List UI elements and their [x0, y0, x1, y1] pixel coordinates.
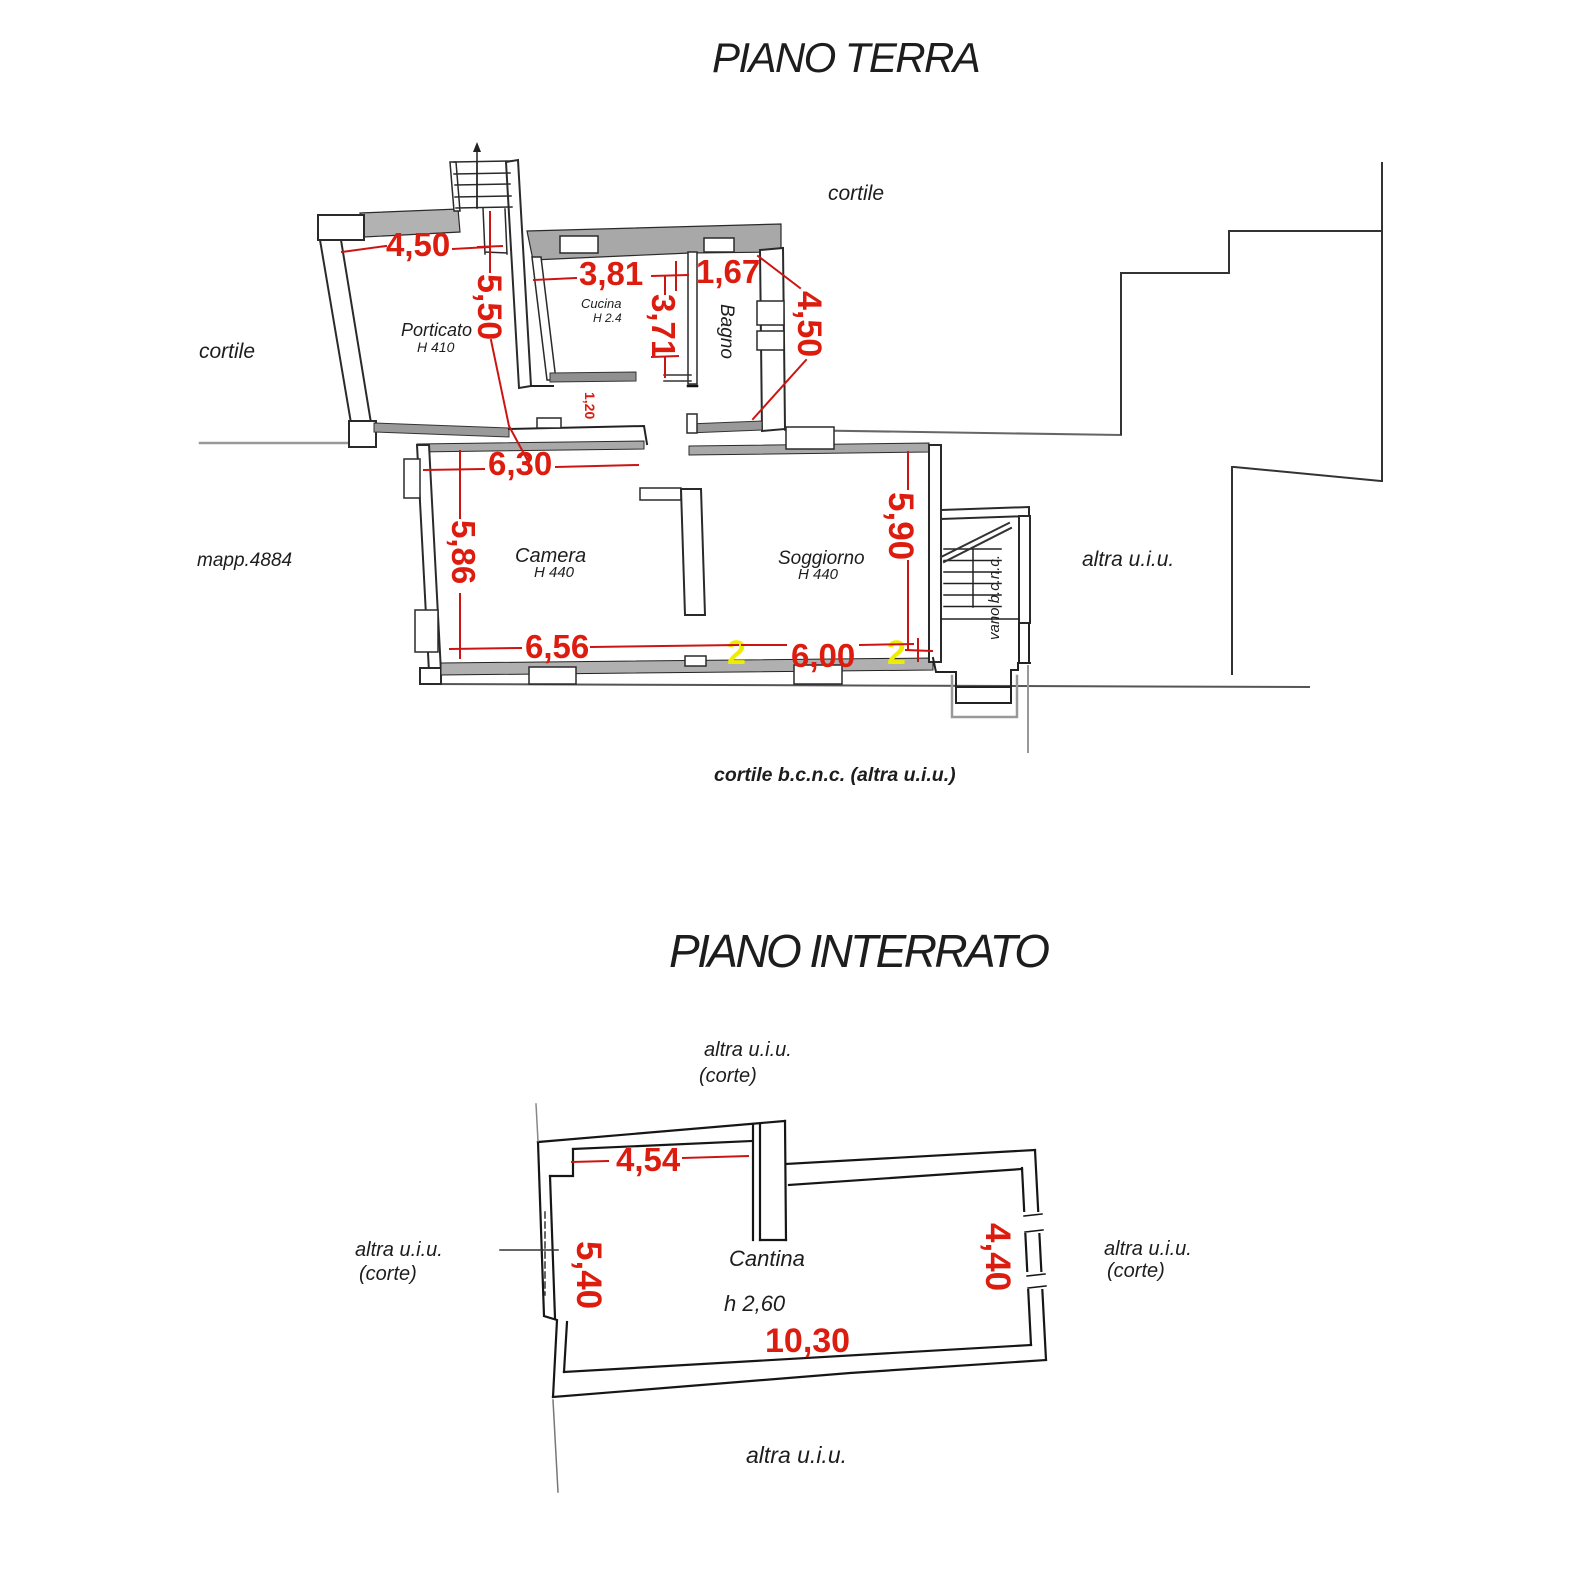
svg-text:3,81: 3,81 [579, 255, 643, 292]
svg-text:1,67: 1,67 [696, 253, 760, 290]
svg-text:(corte): (corte) [359, 1263, 417, 1285]
svg-text:5,40: 5,40 [569, 1241, 608, 1309]
svg-text:1,20: 1,20 [582, 392, 598, 419]
svg-text:vano b.c.n.c.: vano b.c.n.c. [986, 555, 1003, 640]
svg-text:H 2.4: H 2.4 [593, 311, 622, 325]
svg-text:H 440: H 440 [798, 566, 839, 583]
svg-text:5,50: 5,50 [470, 274, 508, 340]
svg-text:Porticato: Porticato [401, 320, 472, 340]
svg-text:4,50: 4,50 [790, 291, 828, 357]
svg-text:mapp.4884: mapp.4884 [197, 550, 292, 571]
svg-text:cortile b.c.n.c. (altra u.i.u.: cortile b.c.n.c. (altra u.i.u.) [714, 764, 956, 786]
svg-text:3,71: 3,71 [645, 294, 682, 358]
svg-text:PIANO TERRA: PIANO TERRA [712, 34, 979, 81]
svg-text:PIANO INTERRATO: PIANO INTERRATO [669, 925, 1049, 977]
svg-text:4,54: 4,54 [616, 1141, 681, 1178]
svg-text:Cucina: Cucina [581, 296, 621, 311]
svg-text:altra u.i.u.: altra u.i.u. [704, 1039, 792, 1061]
svg-text:cortile: cortile [828, 182, 884, 205]
svg-text:H 410: H 410 [417, 339, 455, 355]
svg-text:h 2,60: h 2,60 [724, 1291, 786, 1316]
svg-text:4,50: 4,50 [386, 226, 450, 263]
svg-text:(corte): (corte) [699, 1065, 757, 1087]
svg-text:4,40: 4,40 [978, 1223, 1017, 1291]
svg-text:6,56: 6,56 [525, 628, 589, 665]
svg-text:H 440: H 440 [534, 564, 575, 581]
svg-text:Bagno: Bagno [716, 304, 737, 359]
svg-text:6,00: 6,00 [791, 637, 855, 674]
svg-text:10,30: 10,30 [765, 1322, 850, 1360]
svg-text:cortile: cortile [199, 340, 255, 363]
svg-text:2: 2 [727, 634, 746, 672]
svg-text:Cantina: Cantina [729, 1246, 805, 1271]
svg-text:(corte): (corte) [1107, 1260, 1165, 1282]
svg-text:altra u.i.u.: altra u.i.u. [355, 1239, 443, 1261]
svg-text:5,90: 5,90 [881, 492, 920, 560]
svg-text:6,30: 6,30 [488, 445, 552, 482]
svg-text:2: 2 [887, 634, 906, 672]
svg-text:5,86: 5,86 [445, 520, 482, 584]
svg-text:altra u.i.u.: altra u.i.u. [746, 1442, 847, 1468]
svg-text:altra u.i.u.: altra u.i.u. [1082, 548, 1174, 571]
svg-text:altra u.i.u.: altra u.i.u. [1104, 1238, 1192, 1260]
